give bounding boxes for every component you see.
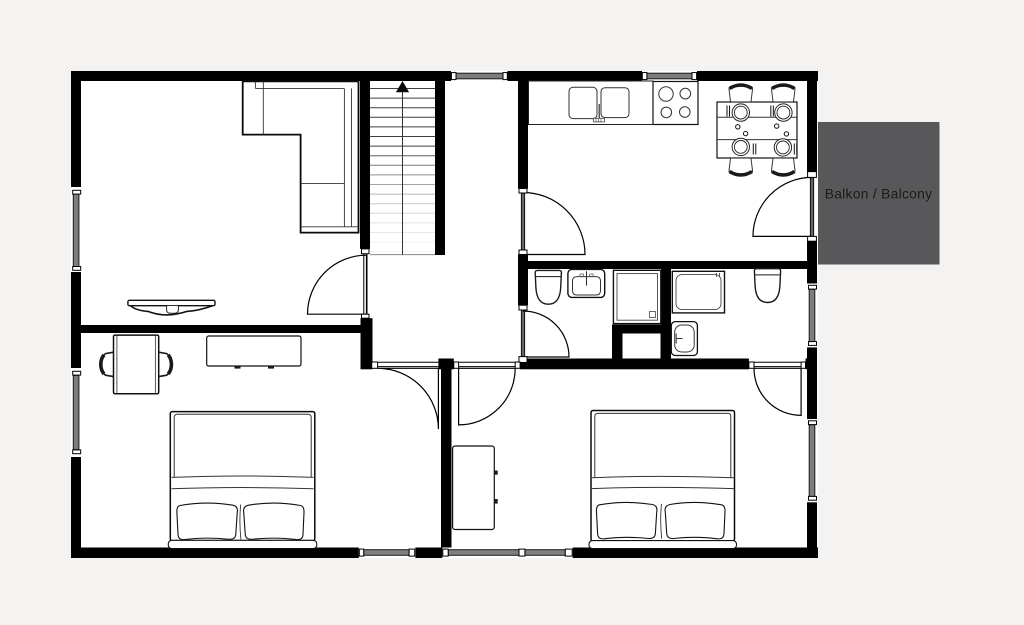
svg-text:Balkon / Balcony: Balkon / Balcony	[825, 187, 933, 202]
